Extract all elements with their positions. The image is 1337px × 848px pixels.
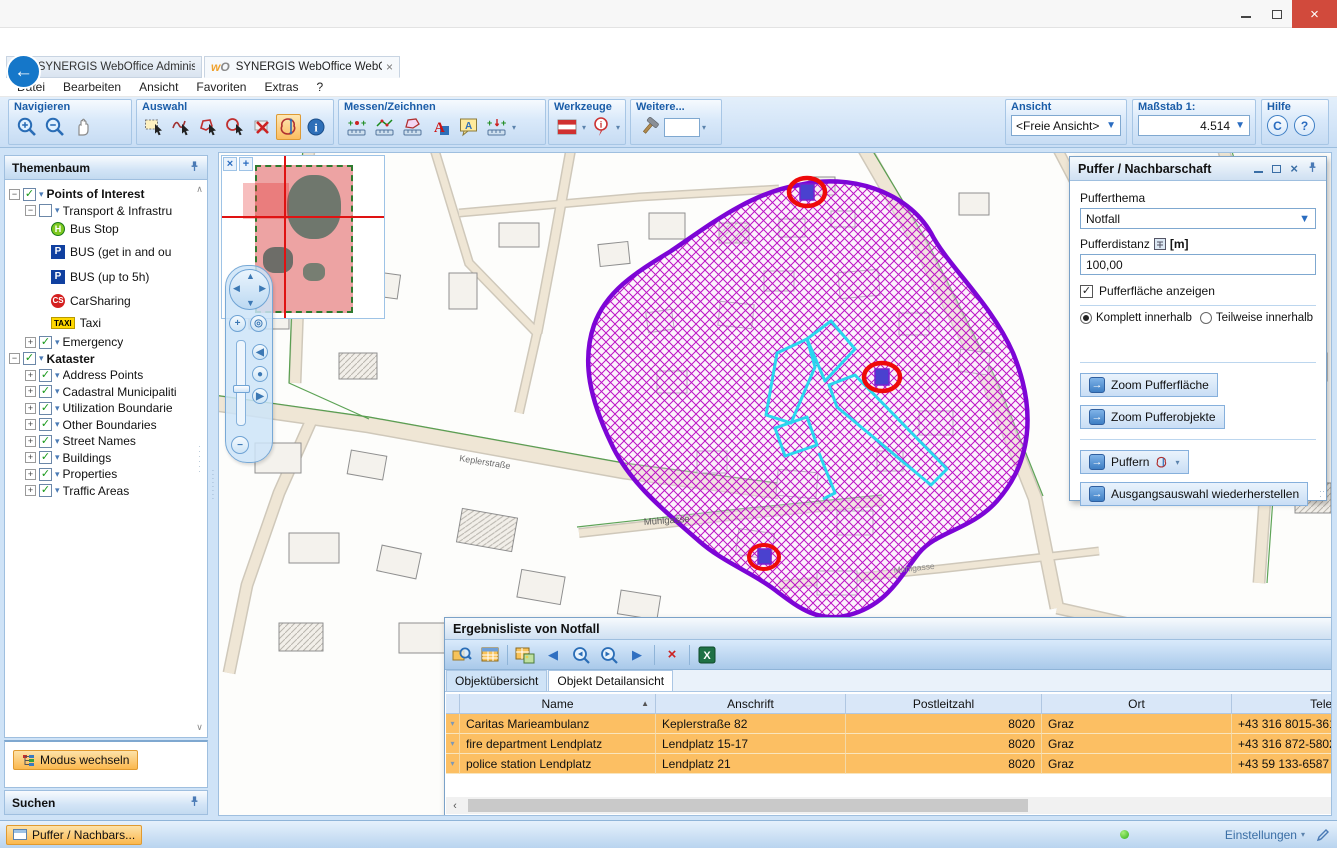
puffer-panel-header[interactable]: Puffer / Nachbarschaft × — [1070, 157, 1326, 181]
menu-favoriten[interactable]: Favoriten — [187, 80, 255, 94]
measure-line-icon[interactable] — [372, 114, 398, 140]
browser-tab-weboffice[interactable]: wO SYNERGIS WebOffice WebO... × — [204, 56, 400, 78]
pan-compass[interactable]: ▲ ▼ ◀ ▶ — [229, 269, 270, 310]
tree-item-utilization-boundaries[interactable]: +✓▾Utilization Boundarie — [7, 400, 205, 417]
sort-ascending-icon: ▲ — [641, 699, 649, 708]
pan-north-icon[interactable]: ▲ — [246, 271, 255, 281]
bus-stop-icon: H — [51, 222, 65, 236]
menu-extras[interactable]: Extras — [255, 80, 307, 94]
minimize-icon — [1241, 16, 1251, 18]
row-menu-icon[interactable]: ▾ — [446, 754, 460, 774]
toolbar-group-ansicht: Ansicht <Freie Ansicht> ▼ — [1005, 99, 1127, 145]
layer-tree: −✓▾Points of Interest −▾Transport & Infr… — [4, 180, 208, 738]
checkbox-checked[interactable]: ✓ — [23, 188, 36, 201]
ansicht-select[interactable]: <Freie Ansicht> ▼ — [1011, 115, 1121, 136]
window-icon — [13, 829, 27, 840]
results-toolbar: ◀ ▶ × X 3 von 3 Objekten ausgewählt — [445, 640, 1332, 670]
chevron-down-icon[interactable]: ▾ — [55, 386, 60, 397]
puffern-dropdown-chevron-icon[interactable]: ▾ — [1175, 458, 1179, 467]
show-buffer-area-checkbox[interactable]: ✓ — [1080, 285, 1093, 298]
aerial-blob — [263, 247, 293, 273]
weitere-select-input[interactable] — [664, 118, 700, 137]
browser-menu-bar: Datei Bearbeiten Ansicht Favoriten Extra… — [0, 78, 1337, 97]
chevron-down-icon[interactable]: ▾ — [55, 205, 60, 216]
window-titlebar: × — [0, 0, 1337, 28]
column-header-name[interactable]: Name▲ — [460, 694, 656, 714]
teilweise-innerhalb-radio[interactable] — [1200, 312, 1212, 324]
tree-item-kataster[interactable]: −✓▾Kataster — [7, 351, 205, 368]
zoom-in-icon[interactable] — [14, 114, 40, 140]
chevron-down-icon[interactable]: ▾ — [55, 419, 60, 430]
modus-area: Modus wechseln — [4, 740, 208, 788]
checkbox-checked[interactable]: ✓ — [39, 402, 52, 415]
measure-coordinate-icon[interactable]: ++ — [484, 114, 510, 140]
tree-item-buildings[interactable]: +✓▾Buildings — [7, 450, 205, 467]
checkbox-checked[interactable]: ✓ — [39, 435, 52, 448]
pufferdistanz-input[interactable]: 100,00 — [1080, 254, 1316, 275]
pufferthema-label: Pufferthema — [1080, 191, 1316, 205]
expand-icon[interactable]: + — [25, 386, 36, 397]
overview-move-icon[interactable]: + — [239, 157, 253, 171]
tools-hammer-icon[interactable] — [636, 114, 662, 140]
chevron-down-icon[interactable]: ▾ — [55, 436, 60, 447]
svg-text:+: + — [361, 118, 366, 128]
sidebar-splitter[interactable]: ········ — [208, 155, 218, 815]
label-annotation-icon[interactable]: A — [456, 114, 482, 140]
panel-minimize-icon[interactable] — [1254, 171, 1263, 173]
toolbar-group-messen: Messen/Zeichnen ++ A A ++ ▾ — [338, 99, 546, 145]
chevron-down-icon: ▼ — [1299, 213, 1310, 225]
app-taskbar: Puffer / Nachbars... Einstellungen ▾ — [0, 820, 1337, 848]
select-circle-icon[interactable] — [223, 114, 248, 140]
next-extent-button[interactable]: ▶ — [252, 388, 268, 404]
chevron-down-icon[interactable]: ▾ — [55, 452, 60, 463]
chevron-down-icon[interactable]: ▾ — [55, 337, 60, 348]
tree-item-bus-up-to-5h[interactable]: PBUS (up to 5h) — [7, 264, 205, 289]
chevron-down-icon[interactable]: ▾ — [55, 485, 60, 496]
edit-pen-icon[interactable] — [1315, 827, 1331, 843]
results-tabs: Objektübersicht Objekt Detailansicht — [445, 670, 1332, 692]
carsharing-icon: CS — [51, 294, 65, 308]
zoom-previous-icon[interactable] — [570, 644, 592, 666]
tree-item-carsharing[interactable]: CSCarSharing — [7, 289, 205, 312]
panel-close-icon[interactable]: × — [1290, 164, 1298, 174]
toolbar-group-auswahl: Auswahl i — [136, 99, 334, 145]
komplett-innerhalb-label: Komplett innerhalb — [1096, 312, 1192, 324]
tab-objektuebersicht[interactable]: Objektübersicht — [446, 670, 547, 691]
select-line-icon[interactable] — [169, 114, 194, 140]
puffern-button[interactable]: →Puffern▾ — [1080, 450, 1189, 474]
pin-icon[interactable] — [189, 160, 200, 175]
expand-icon[interactable]: + — [25, 436, 36, 447]
tree-scrollbar[interactable]: ∧ ······ ∨ — [193, 184, 206, 733]
center-button[interactable]: ● — [252, 366, 268, 382]
excel-export-icon[interactable]: X — [696, 644, 718, 666]
previous-extent-button[interactable]: ◀ — [252, 344, 268, 360]
table-row[interactable]: ▾ fire department Lendplatz Lendplatz 15… — [446, 734, 1332, 754]
tree-item-properties[interactable]: +✓▾Properties — [7, 466, 205, 483]
chevron-down-icon[interactable]: ▾ — [39, 189, 44, 200]
table-header-row: Name▲ Anschrift Postleitzahl Ort Telefon… — [446, 694, 1332, 714]
window-maximize-button[interactable] — [1261, 0, 1292, 28]
divider — [1080, 439, 1316, 440]
buffer-shape-icon — [1155, 455, 1169, 470]
pufferthema-select[interactable]: Notfall ▼ — [1080, 208, 1316, 229]
window-close-button[interactable]: × — [1292, 0, 1337, 28]
measure-point-icon[interactable]: ++ — [344, 114, 370, 140]
buffer-polygon[interactable] — [588, 181, 1027, 617]
toolbar-group-massstab: Maßstab 1: 4.514 ▼ — [1132, 99, 1256, 145]
column-header-telefon[interactable]: Telefon — [1232, 694, 1332, 714]
scroll-down-icon[interactable]: ∨ — [196, 722, 203, 733]
ausgangsauswahl-button[interactable]: →Ausgangsauswahl wiederherstellen — [1080, 482, 1308, 506]
expand-icon[interactable]: + — [25, 370, 36, 381]
scroll-left-icon[interactable]: ‹ — [446, 800, 464, 812]
svg-text:+: + — [487, 118, 492, 128]
zoom-pufferobjekte-button[interactable]: →Zoom Pufferobjekte — [1080, 405, 1225, 429]
measure-area-icon[interactable] — [400, 114, 426, 140]
unit-label: [m] — [1170, 237, 1189, 251]
checkbox-checked[interactable]: ✓ — [39, 418, 52, 431]
overview-close-icon[interactable]: × — [223, 157, 237, 171]
checkbox-checked[interactable]: ✓ — [39, 336, 52, 349]
suchen-panel: Suchen — [4, 790, 208, 815]
divider — [654, 645, 655, 665]
divider — [1080, 362, 1316, 363]
arrow-right-icon: → — [1089, 409, 1105, 425]
overview-crosshair-vertical — [284, 156, 286, 319]
divider — [507, 645, 508, 665]
arrow-right-icon: → — [1089, 454, 1105, 470]
pin-icon[interactable] — [1307, 161, 1318, 176]
map-canvas[interactable]: Mühlgasse Mühlgasse Keplerstraße × + ▲ — [218, 152, 1332, 816]
checkbox-checked[interactable]: ✓ — [39, 484, 52, 497]
weboffice-favicon: wO — [211, 60, 230, 74]
help-button[interactable]: ? — [1294, 115, 1315, 136]
modus-wechseln-button[interactable]: Modus wechseln — [13, 750, 138, 770]
svg-text:A: A — [434, 120, 445, 136]
expand-icon[interactable]: + — [25, 485, 36, 496]
zoom-in-button[interactable]: + — [229, 315, 246, 332]
checkbox-checked[interactable]: ✓ — [39, 468, 52, 481]
chevron-down-icon: ▾ — [1301, 830, 1305, 839]
messen-dropdown-chevron-icon[interactable]: ▾ — [512, 123, 516, 132]
app-toolbar: Navigieren Auswahl i Messen/Zeichnen ++ … — [0, 97, 1337, 148]
massstab-select[interactable]: 4.514 ▼ — [1138, 115, 1250, 136]
calculator-icon[interactable] — [1154, 238, 1166, 250]
show-buffer-area-label: Pufferfläche anzeigen — [1099, 284, 1215, 298]
suchen-header[interactable]: Suchen — [4, 790, 208, 815]
column-header-anschrift[interactable]: Anschrift — [656, 694, 846, 714]
toolbar-group-hilfe: Hilfe C ? — [1261, 99, 1329, 145]
zoom-pufferflaeche-button[interactable]: →Zoom Pufferfläche — [1080, 373, 1218, 397]
collapse-icon[interactable]: − — [9, 189, 20, 200]
maptip-pin-icon[interactable]: i — [588, 114, 614, 140]
zoom-out-icon[interactable] — [42, 114, 68, 140]
panel-restore-icon[interactable] — [1272, 165, 1281, 173]
checkbox-checked[interactable]: ✓ — [23, 352, 36, 365]
chevron-down-icon[interactable]: ▾ — [39, 353, 44, 364]
results-horizontal-scrollbar[interactable]: ‹ › — [446, 797, 1332, 814]
row-menu-icon[interactable]: ▾ — [446, 734, 460, 754]
tree-item-transport-infrastructure[interactable]: −▾Transport & Infrastru — [7, 203, 205, 220]
ergebnisliste-panel: Ergebnisliste von Notfall × ◀ ▶ × — [444, 617, 1332, 816]
tree-item-points-of-interest[interactable]: −✓▾Points of Interest — [7, 186, 205, 203]
redlining-dropdown-chevron-icon[interactable]: ▾ — [582, 123, 586, 132]
expand-icon[interactable]: + — [25, 419, 36, 430]
toolbar-group-weitere: Weitere... ▾ — [630, 99, 722, 145]
teilweise-innerhalb-label: Teilweise innerhalb — [1216, 312, 1313, 324]
zoom-slider-thumb[interactable] — [233, 385, 250, 393]
pan-south-icon[interactable]: ▼ — [246, 298, 255, 308]
collapse-icon[interactable]: − — [9, 353, 20, 364]
panel-resize-grip[interactable]: ··· — [1319, 489, 1325, 499]
maximize-icon — [1272, 10, 1282, 19]
clear-selection-icon[interactable] — [249, 114, 274, 140]
arrow-right-icon: → — [1089, 377, 1105, 393]
tree-item-address-points[interactable]: +✓▾Address Points — [7, 367, 205, 384]
tree-item-street-names[interactable]: +✓▾Street Names — [7, 433, 205, 450]
show-table-icon[interactable] — [479, 644, 501, 666]
remove-selection-icon[interactable]: × — [661, 644, 683, 666]
tab-close-icon[interactable]: × — [386, 60, 393, 74]
window-minimize-button[interactable] — [1230, 0, 1261, 28]
chevron-down-icon[interactable]: ▾ — [55, 403, 60, 414]
svg-text:+: + — [348, 118, 353, 128]
chevron-down-icon[interactable]: ▾ — [55, 370, 60, 381]
maptip-dropdown-chevron-icon[interactable]: ▾ — [616, 123, 620, 132]
map-navigation-widget[interactable]: ▲ ▼ ◀ ▶ + ◎ ◀ ● ▶ − — [225, 265, 273, 463]
column-header-postleitzahl[interactable]: Postleitzahl — [846, 694, 1042, 714]
bus-parking-icon: P — [51, 270, 65, 284]
themenbaum-panel: Themenbaum −✓▾Points of Interest −▾Trans… — [4, 155, 208, 738]
tab-objekt-detailansicht[interactable]: Objekt Detailansicht — [548, 670, 673, 691]
ergebnisliste-header[interactable]: Ergebnisliste von Notfall × — [445, 618, 1332, 640]
zoom-out-button[interactable]: − — [231, 436, 249, 454]
menu-help[interactable]: ? — [307, 80, 332, 94]
overview-crosshair-horizontal — [222, 216, 385, 218]
splitter-grip[interactable]: ········ — [212, 469, 215, 501]
aerial-blob — [287, 175, 341, 239]
pan-hand-icon[interactable] — [70, 114, 96, 140]
tree-item-emergency[interactable]: +✓▾Emergency — [7, 334, 205, 351]
weitere-dropdown-chevron-icon[interactable]: ▾ — [702, 123, 706, 132]
browser-url-row: ← → wO http://w-ws-rainer:8080/WebOffice… — [0, 28, 1337, 56]
zoom-slider[interactable] — [236, 340, 246, 426]
chevron-down-icon: ▼ — [1235, 120, 1245, 131]
table-map-icon[interactable] — [514, 644, 536, 666]
browser-back-button[interactable]: ← — [6, 54, 41, 89]
checkbox-unchecked[interactable] — [39, 204, 52, 217]
divider — [1080, 305, 1316, 306]
results-table: Name▲ Anschrift Postleitzahl Ort Telefon… — [446, 694, 1332, 774]
checkbox-checked[interactable]: ✓ — [39, 369, 52, 382]
svg-text:+: + — [501, 118, 506, 128]
puffer-window-taskbar-button[interactable]: Puffer / Nachbars... — [6, 825, 142, 845]
svg-text:A: A — [465, 121, 472, 132]
divider — [689, 645, 690, 665]
context-help-button[interactable]: C — [1267, 115, 1288, 136]
tree-item-cadastral-municipalities[interactable]: +✓▾Cadastral Municipaliti — [7, 384, 205, 401]
column-header-ort[interactable]: Ort — [1042, 694, 1232, 714]
weboffice-app: { "browser": { "favicon_w": "w", "favico… — [0, 0, 1337, 848]
tree-item-taxi[interactable]: TAXITaxi — [7, 312, 205, 334]
toolbar-group-navigieren: Navigieren — [8, 99, 132, 145]
text-annotation-icon[interactable]: A — [428, 114, 454, 140]
komplett-innerhalb-radio[interactable] — [1080, 312, 1092, 324]
scroll-up-icon[interactable]: ∧ — [196, 184, 203, 195]
checkbox-checked[interactable]: ✓ — [39, 451, 52, 464]
menu-ansicht[interactable]: Ansicht — [130, 80, 187, 94]
next-record-icon[interactable]: ▶ — [626, 644, 648, 666]
table-row[interactable]: ▾ Caritas Marieambulanz Keplerstraße 82 … — [446, 714, 1332, 734]
menu-bearbeiten[interactable]: Bearbeiten — [54, 80, 130, 94]
pufferdistanz-label: Pufferdistanz — [1080, 237, 1150, 251]
mode-tree-icon — [22, 754, 35, 767]
row-menu-icon[interactable]: ▾ — [446, 714, 460, 734]
pin-icon[interactable] — [189, 795, 200, 810]
pan-east-icon[interactable]: ▶ — [259, 283, 266, 294]
chevron-down-icon[interactable]: ▾ — [55, 469, 60, 480]
tree-item-traffic-areas[interactable]: +✓▾Traffic Areas — [7, 483, 205, 500]
tree-item-bus-stop[interactable]: HBus Stop — [7, 219, 205, 239]
puffer-nachbarschaft-panel: Puffer / Nachbarschaft × Pufferthema Not… — [1069, 156, 1327, 501]
expand-icon[interactable]: + — [25, 403, 36, 414]
overview-extent-box[interactable] — [243, 183, 289, 219]
expand-icon[interactable]: + — [25, 452, 36, 463]
bus-parking-ea-icon: P — [51, 245, 65, 259]
expand-icon[interactable]: + — [25, 469, 36, 480]
previous-record-icon[interactable]: ◀ — [542, 644, 564, 666]
collapse-icon[interactable]: − — [25, 205, 36, 216]
chevron-down-icon: ▼ — [1106, 120, 1116, 131]
status-green-dot-icon — [1120, 830, 1129, 839]
main-area: Themenbaum −✓▾Points of Interest −▾Trans… — [0, 148, 1337, 820]
toolbar-group-werkzeuge: Werkzeuge ▾ i ▾ — [548, 99, 626, 145]
taxi-icon: TAXI — [51, 317, 75, 329]
zoom-to-selected-icon[interactable] — [451, 644, 473, 666]
checkbox-checked[interactable]: ✓ — [39, 385, 52, 398]
svg-text:X: X — [703, 650, 711, 662]
identify-info-icon[interactable]: i — [303, 114, 328, 140]
pan-west-icon[interactable]: ◀ — [233, 283, 240, 294]
tree-item-bus-get-in-out[interactable]: PBUS (get in and ou — [7, 239, 205, 264]
tree-item-other-boundaries[interactable]: +✓▾Other Boundaries — [7, 417, 205, 434]
scrollbar-thumb[interactable] — [468, 799, 1028, 812]
buffer-selection-icon[interactable] — [276, 114, 301, 140]
browser-tab-row: wO SYNERGIS WebOffice Administ... wO SYN… — [0, 56, 1337, 78]
full-extent-button[interactable]: ◎ — [250, 315, 267, 332]
header-row-selector — [446, 694, 460, 714]
aerial-blob — [303, 263, 325, 281]
themenbaum-header[interactable]: Themenbaum — [4, 155, 208, 180]
scrollbar-grip[interactable]: ······ — [198, 444, 201, 474]
select-polygon-icon[interactable] — [196, 114, 221, 140]
redlining-flag-icon[interactable] — [554, 114, 580, 140]
table-row[interactable]: ▾ police station Lendplatz Lendplatz 21 … — [446, 754, 1332, 774]
einstellungen-menu[interactable]: Einstellungen ▾ — [1225, 828, 1305, 842]
zoom-next-icon[interactable] — [598, 644, 620, 666]
expand-icon[interactable]: + — [25, 337, 36, 348]
arrow-right-icon: → — [1089, 486, 1105, 502]
select-rectangle-icon[interactable] — [142, 114, 167, 140]
